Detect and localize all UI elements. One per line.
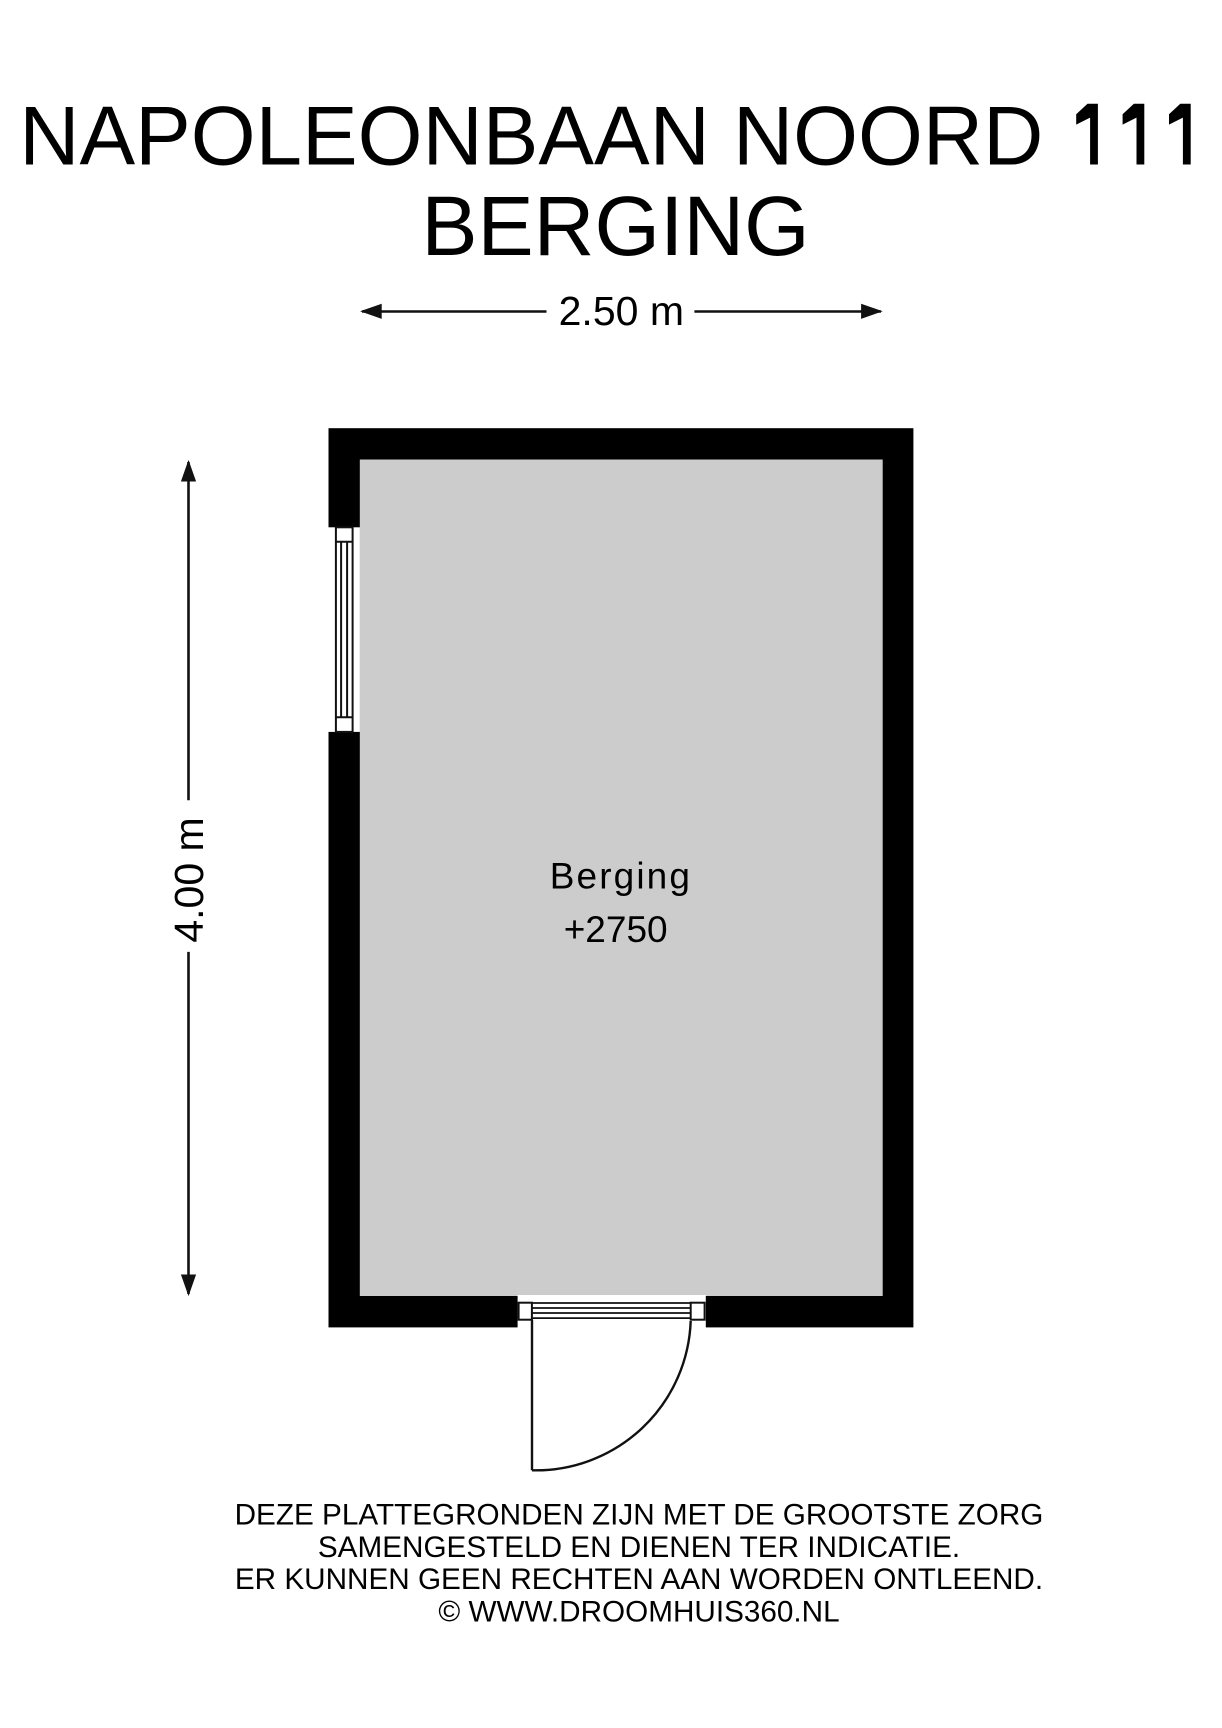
svg-text:© WWW.DROOMHUIS360.NL: © WWW.DROOMHUIS360.NL <box>438 1595 839 1628</box>
svg-text:4.00 m: 4.00 m <box>166 817 212 942</box>
svg-text:+2750: +2750 <box>564 909 668 950</box>
svg-text:BERGING: BERGING <box>421 179 809 273</box>
svg-text:NAPOLEONBAAN NOORD: NAPOLEONBAAN NOORD <box>19 90 1043 183</box>
svg-text:2.50 m: 2.50 m <box>559 288 684 334</box>
svg-text:ER KUNNEN GEEN RECHTEN AAN WOR: ER KUNNEN GEEN RECHTEN AAN WORDEN ONTLEE… <box>235 1563 1043 1596</box>
svg-text:Berging: Berging <box>550 856 692 897</box>
svg-text:DEZE PLATTEGRONDEN ZIJN MET DE: DEZE PLATTEGRONDEN ZIJN MET DE GROOTSTE … <box>235 1499 1044 1532</box>
svg-text:SAMENGESTELD EN DIENEN TER IND: SAMENGESTELD EN DIENEN TER INDICATIE. <box>318 1531 960 1564</box>
